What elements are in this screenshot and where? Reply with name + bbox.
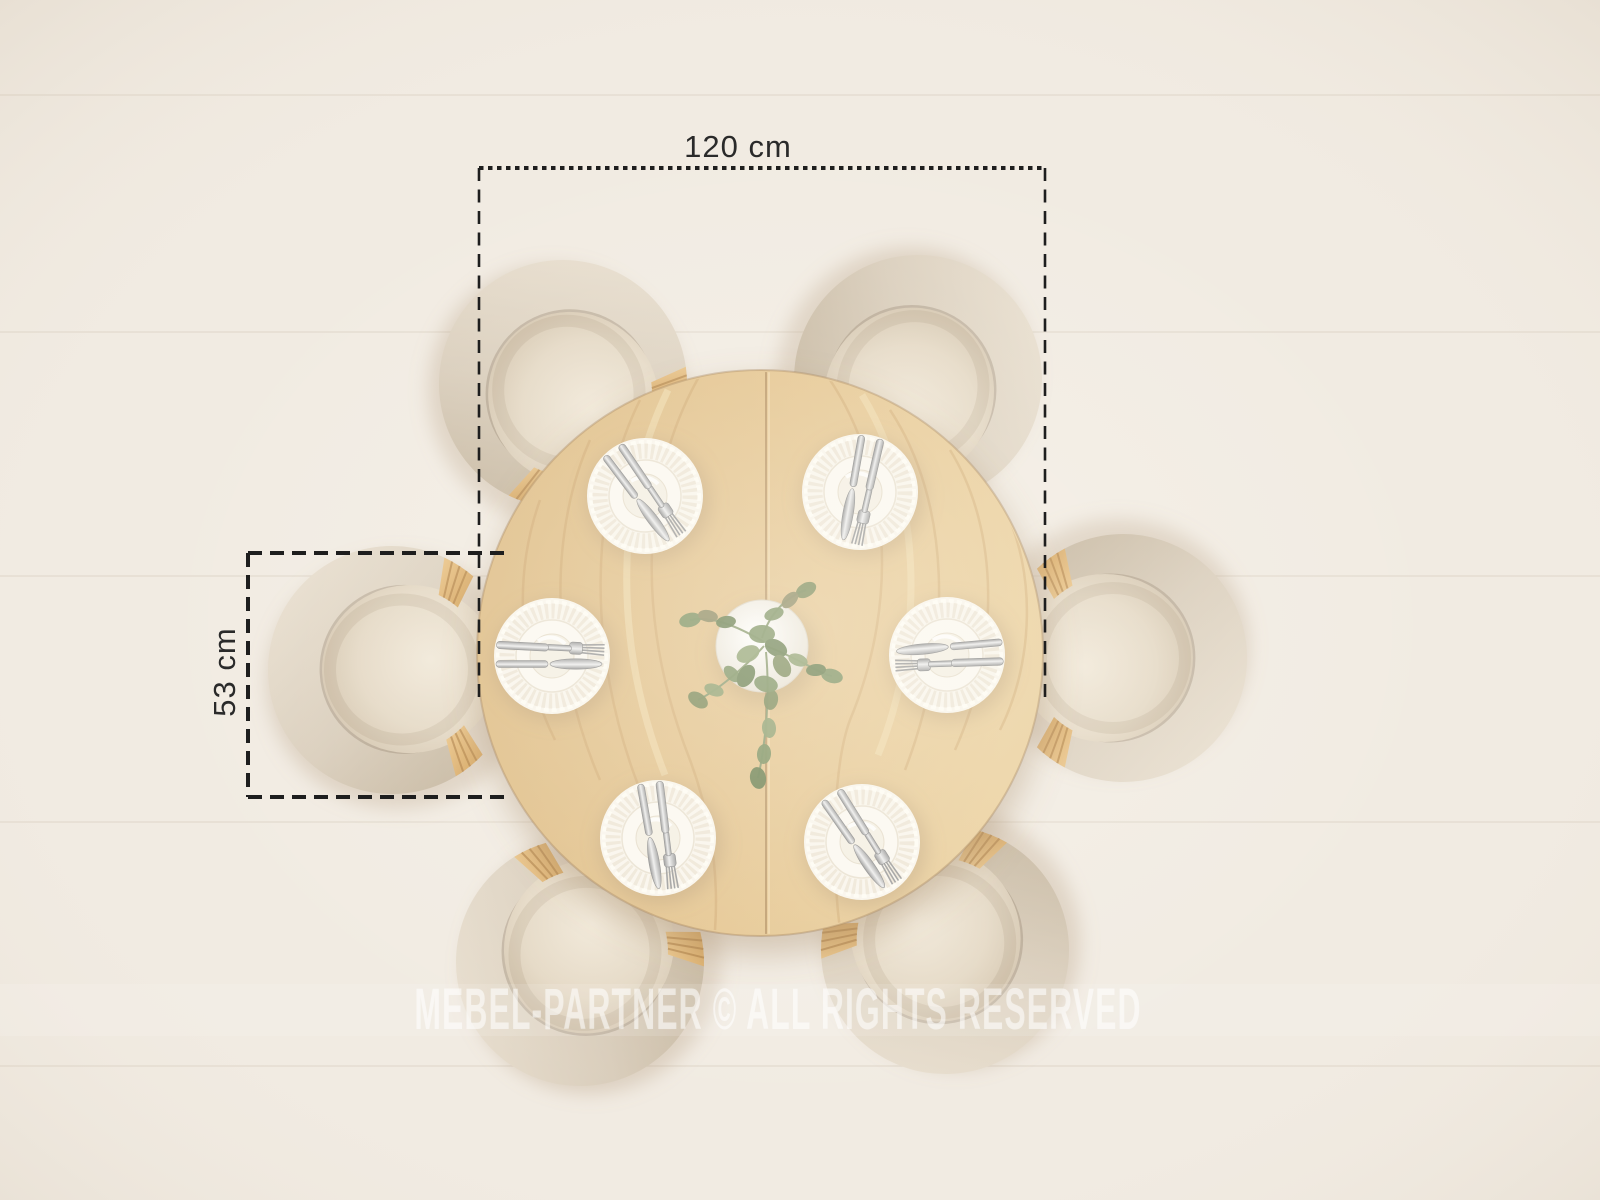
product-photo-stage: 120 cm 53 cm MEBEL-PARTNER © ALL RIGHTS … [0,0,1600,1200]
scene-svg: 120 cm 53 cm [0,0,1600,1200]
table-width-label: 120 cm [684,129,792,164]
chair-width-label: 53 cm [207,627,242,716]
vignette-overlay [0,0,1600,1200]
